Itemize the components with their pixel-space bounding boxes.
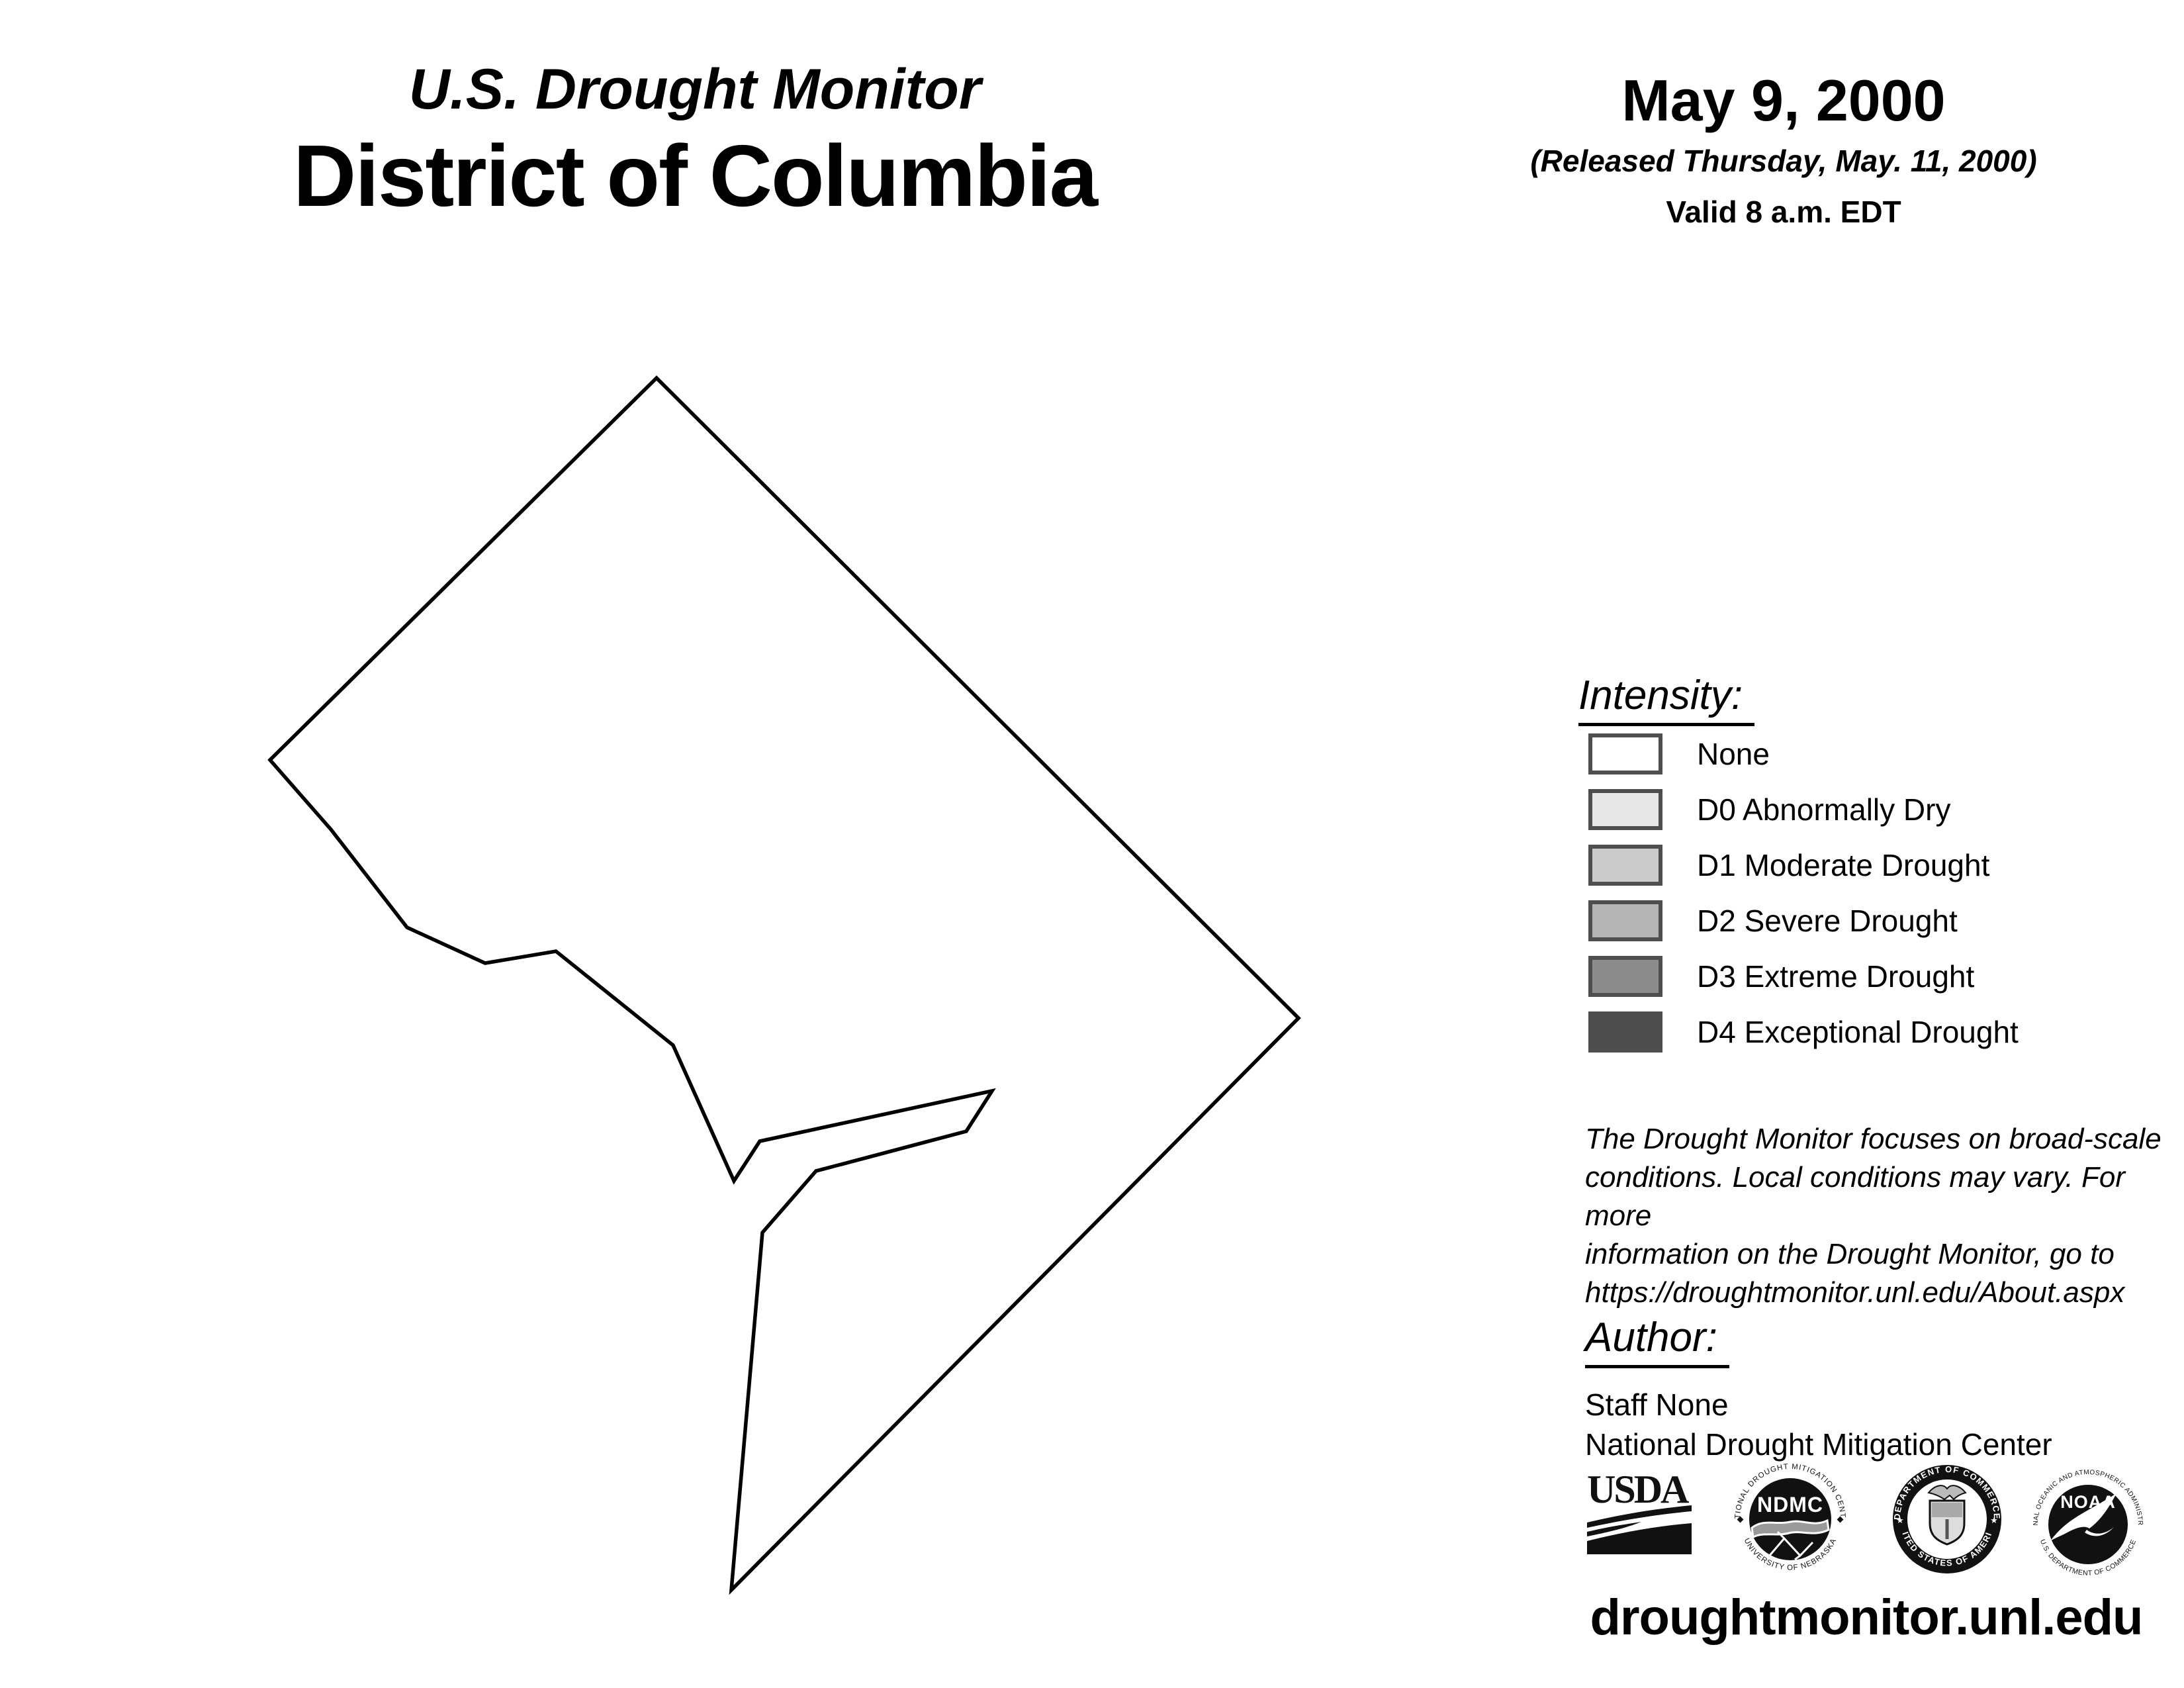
valid-time: Valid 8 a.m. EDT xyxy=(1516,195,2052,229)
district-of-columbia-shape xyxy=(270,378,1298,1590)
disclaimer-line: The Drought Monitor focuses on broad-sca… xyxy=(1585,1120,2184,1158)
legend-swatch-d3 xyxy=(1588,956,1662,997)
intensity-legend: None D0 Abnormally Dry D1 Moderate Droug… xyxy=(1588,733,2019,1067)
noaa-logo-icon: NATIONAL OCEANIC AND ATMOSPHERIC ADMINIS… xyxy=(2030,1467,2146,1583)
legend-label: D2 Severe Drought xyxy=(1697,903,1958,939)
ndmc-logo-text: NDMC xyxy=(1757,1493,1823,1517)
page-title: District of Columbia xyxy=(199,130,1191,222)
author-organization: National Drought Mitigation Center xyxy=(1585,1425,2052,1464)
legend-label: D0 Abnormally Dry xyxy=(1697,792,1950,827)
legend-label: D4 Exceptional Drought xyxy=(1697,1014,2019,1050)
usda-logo-text: USDA xyxy=(1587,1468,1689,1511)
author-block: Staff None National Drought Mitigation C… xyxy=(1585,1385,2052,1464)
legend-swatch-d1 xyxy=(1588,845,1662,886)
release-date: (Released Thursday, May. 11, 2000) xyxy=(1516,144,2052,178)
legend-heading: Intensity: xyxy=(1578,672,1754,726)
legend-swatch-d0 xyxy=(1588,789,1662,830)
report-kicker: U.S. Drought Monitor xyxy=(199,58,1191,121)
title-block: U.S. Drought Monitor District of Columbi… xyxy=(199,58,1191,222)
legend-swatch-none xyxy=(1588,733,1662,774)
legend-swatch-d2 xyxy=(1588,900,1662,941)
commerce-seal-icon: DEPARTMENT OF COMMERCE UNITED STATES OF … xyxy=(1888,1460,2007,1579)
legend-swatch-d4 xyxy=(1588,1011,1662,1053)
disclaimer-line: information on the Drought Monitor, go t… xyxy=(1585,1235,2184,1274)
ndmc-logo-icon: NATIONAL DROUGHT MITIGATION CENTER UNIVE… xyxy=(1734,1463,1846,1575)
disclaimer-line: https://droughtmonitor.unl.edu/About.asp… xyxy=(1585,1274,2184,1312)
legend-item-d2: D2 Severe Drought xyxy=(1588,900,2019,941)
legend-label: D3 Extreme Drought xyxy=(1697,959,1974,994)
author-heading: Author: xyxy=(1585,1314,1729,1368)
svg-text:★: ★ xyxy=(1896,1515,1904,1525)
usda-logo-icon: USDA xyxy=(1587,1467,1692,1554)
droughtmonitor-url: droughtmonitor.unl.edu xyxy=(1562,1589,2171,1646)
disclaimer-text: The Drought Monitor focuses on broad-sca… xyxy=(1585,1120,2184,1312)
legend-item-d3: D3 Extreme Drought xyxy=(1588,956,2019,997)
legend-item-d4: D4 Exceptional Drought xyxy=(1588,1011,2019,1053)
svg-text:★: ★ xyxy=(1990,1515,1998,1525)
legend-label: None xyxy=(1697,736,1770,772)
legend-label: D1 Moderate Drought xyxy=(1697,847,1989,883)
disclaimer-line: conditions. Local conditions may vary. F… xyxy=(1585,1158,2184,1235)
legend-item-none: None xyxy=(1588,733,2019,774)
date-block: May 9, 2000 (Released Thursday, May. 11,… xyxy=(1516,71,2052,228)
legend-item-d1: D1 Moderate Drought xyxy=(1588,845,2019,886)
author-name: Staff None xyxy=(1585,1385,2052,1425)
legend-item-d0: D0 Abnormally Dry xyxy=(1588,789,2019,830)
map-date: May 9, 2000 xyxy=(1516,71,2052,130)
